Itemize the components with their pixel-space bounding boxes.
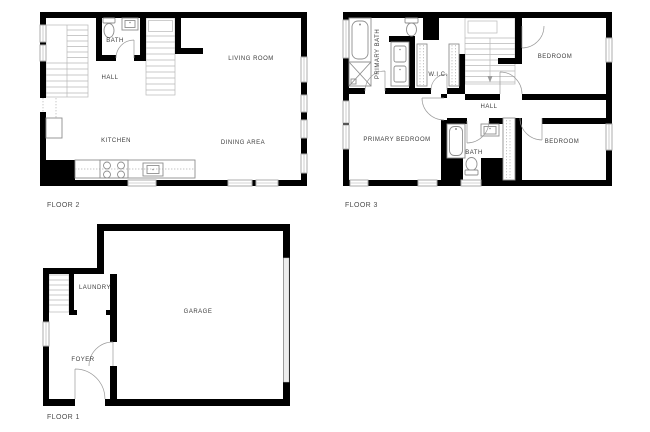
toilet-fixture-2 xyxy=(465,158,478,176)
sink-fixture xyxy=(122,18,138,30)
room-label-bath: BATH xyxy=(106,38,124,44)
floor1-background xyxy=(43,224,295,406)
entry-opening xyxy=(75,399,105,406)
bathtub-fixture xyxy=(349,18,371,62)
sink-fixture-2 xyxy=(481,124,499,136)
floor3-plan: PRIMARY BATH W.I.C. BEDROOM HALL PRIMARY… xyxy=(343,12,612,186)
floor2-plan: BATH HALL LIVING ROOM KITCHEN DINING ARE… xyxy=(40,12,307,186)
floor2-label: FLOOR 2 xyxy=(47,202,80,209)
garage-door xyxy=(284,258,290,382)
toilet-fixture xyxy=(103,18,115,38)
floor3-label: FLOOR 3 xyxy=(345,202,378,209)
room-label-living-room: LIVING ROOM xyxy=(228,56,274,62)
floor1-plan: LAUNDRY FOYER GARAGE xyxy=(43,224,295,406)
floor1-windows xyxy=(43,322,49,346)
room-label-garage: GARAGE xyxy=(184,309,213,315)
room-label-laundry: LAUNDRY xyxy=(79,285,111,291)
room-label-bedroom-top: BEDROOM xyxy=(538,54,573,60)
room-label-kitchen: KITCHEN xyxy=(101,138,131,144)
bathtub-fixture-2 xyxy=(447,124,465,158)
room-label-wic: W.I.C. xyxy=(428,72,447,78)
room-label-bath: BATH xyxy=(465,150,483,156)
room-label-hall: HALL xyxy=(101,75,118,81)
room-label-dining-area: DINING AREA xyxy=(221,140,265,146)
room-label-bedroom-bottom: BEDROOM xyxy=(545,139,580,145)
room-label-primary-bath: PRIMARY BATH xyxy=(375,29,381,79)
room-label-hall: HALL xyxy=(480,104,497,110)
vanity-fixture xyxy=(391,42,409,86)
kitchen-counter xyxy=(75,160,195,178)
floor-plan-canvas: BATH HALL LIVING ROOM KITCHEN DINING ARE… xyxy=(0,0,650,432)
floor1-label: FLOOR 1 xyxy=(47,414,80,421)
room-label-foyer: FOYER xyxy=(71,357,94,363)
toilet-fixture xyxy=(405,18,418,36)
room-label-primary-bedroom: PRIMARY BEDROOM xyxy=(363,137,430,143)
